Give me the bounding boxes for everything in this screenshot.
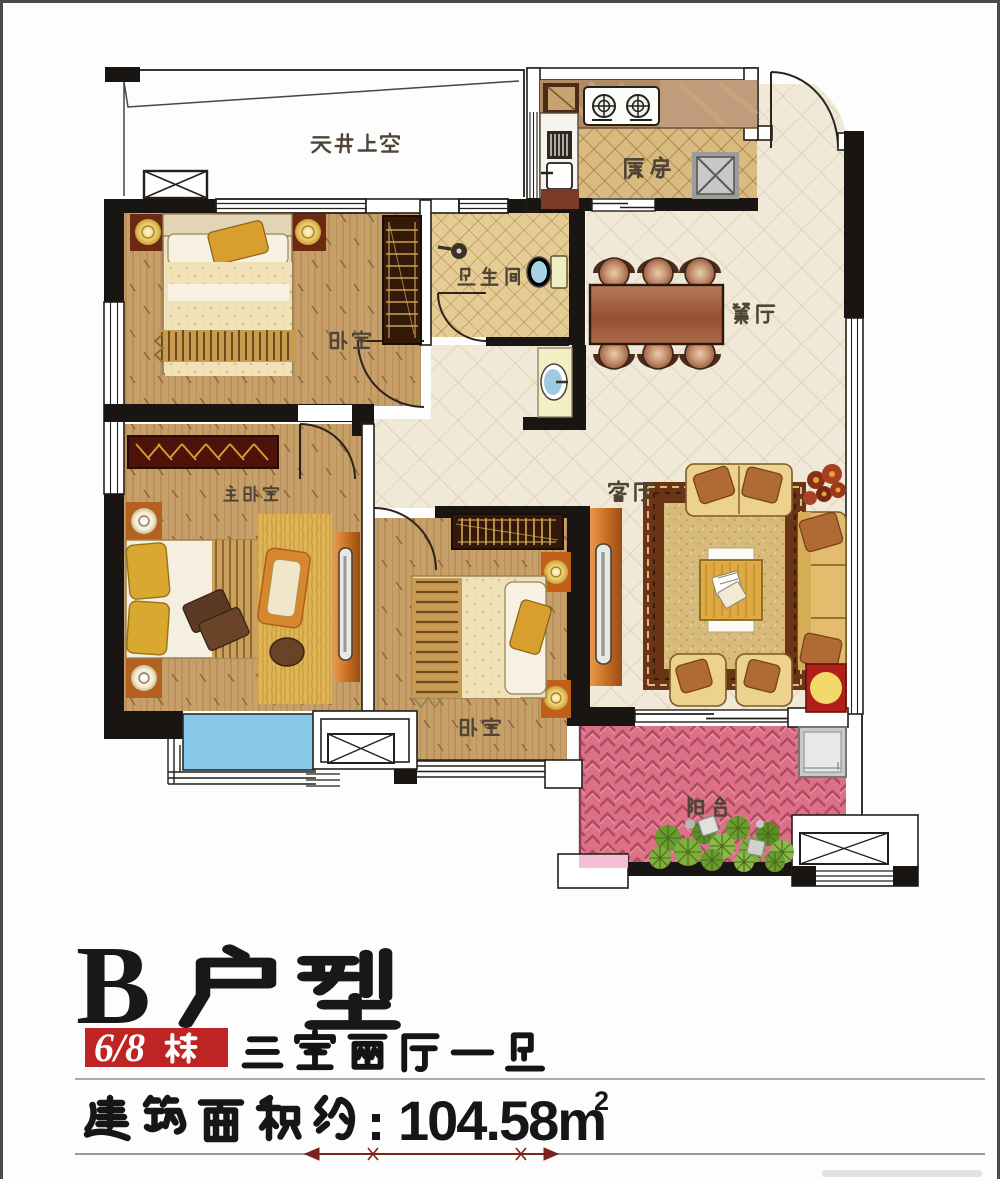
svg-text:104.58m: 104.58m	[398, 1089, 605, 1152]
svg-text:6/8: 6/8	[94, 1025, 145, 1070]
svg-text:2: 2	[594, 1086, 609, 1116]
